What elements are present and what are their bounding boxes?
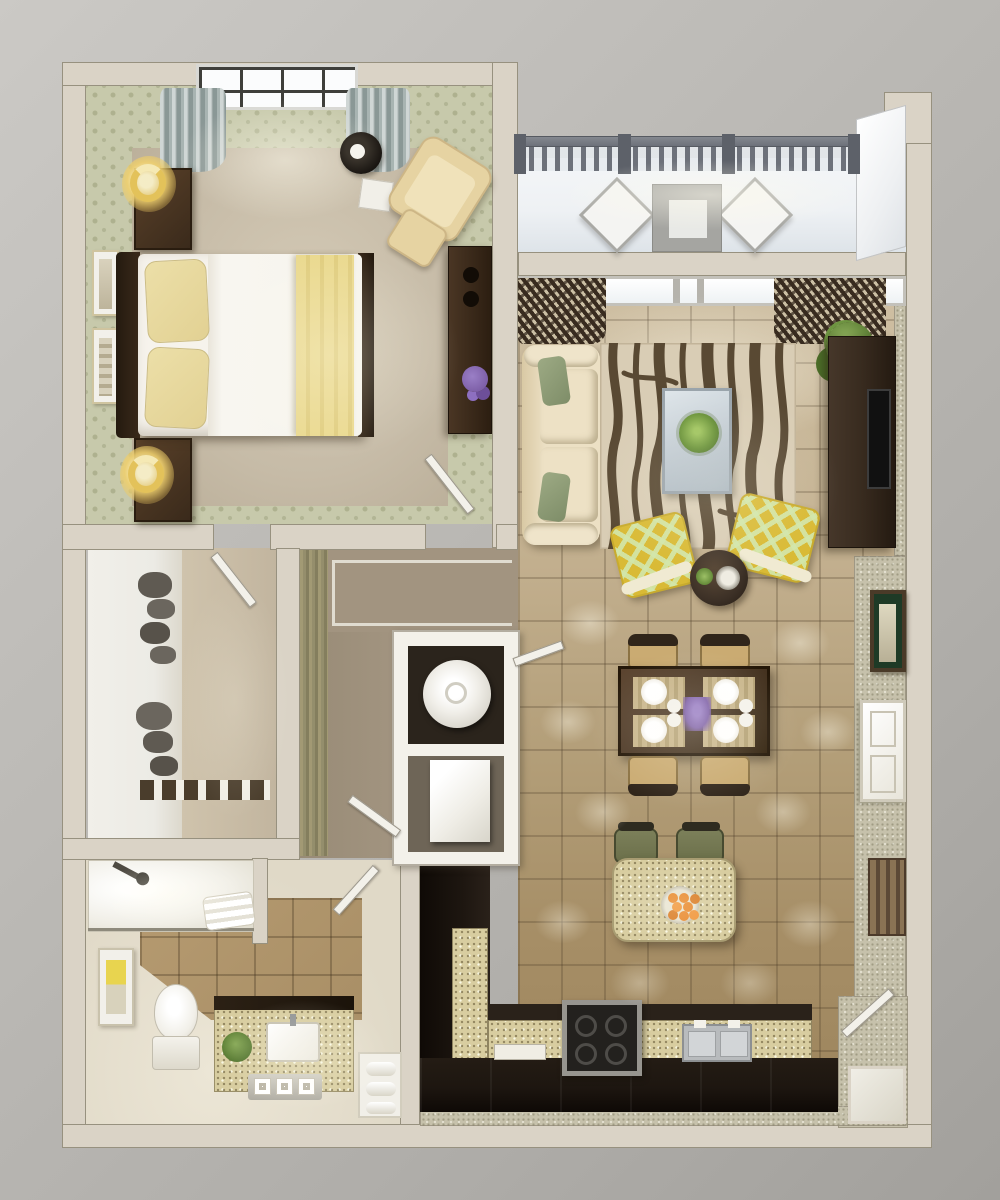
fruit-bowl: [661, 886, 699, 924]
entry-niche: [848, 1066, 906, 1124]
chair-back: [628, 634, 678, 646]
flowers-purple: [462, 366, 488, 392]
dresser-handle: [463, 267, 479, 283]
closet-clothes-top: [134, 572, 180, 670]
sofa: [522, 345, 600, 545]
toilet-tank: [152, 1036, 200, 1070]
stove: [562, 1000, 642, 1076]
table-succulent: [696, 568, 713, 585]
washer-lid-ring: [445, 682, 467, 704]
bathroom-right-wall: [400, 858, 420, 1125]
shower-glass-line: [88, 928, 254, 931]
side-plate: [667, 699, 681, 713]
dining-chair-bottom-right: [700, 756, 750, 790]
railing-balusters: [516, 147, 859, 171]
towel-roll: [366, 1062, 396, 1076]
sink-basin: [720, 1031, 748, 1057]
hallway-trim: [332, 560, 512, 626]
dining-table: [618, 666, 770, 756]
bath-towels: [202, 891, 256, 932]
exterior-wall-right: [906, 92, 932, 1148]
balcony-side-wall: [856, 105, 906, 261]
railing-post: [618, 134, 631, 174]
hall-closet-panel: [860, 700, 906, 802]
bed-throw-blanket: [296, 255, 354, 436]
bedroom-floor-lamp: [340, 132, 382, 174]
stove-grate: [605, 1015, 627, 1037]
chair-back: [628, 784, 678, 796]
candle-bowl: [716, 566, 740, 590]
stove-grate: [575, 1015, 597, 1037]
dinner-plate: [641, 717, 667, 743]
bedroom-curtain-left: [160, 88, 226, 172]
art-content: [879, 604, 896, 662]
stove-grate: [575, 1043, 597, 1065]
bathroom-divider-stub: [252, 858, 268, 944]
side-plate: [739, 699, 753, 713]
bedroom-flower-vase: [460, 366, 492, 412]
chair-back: [700, 784, 750, 796]
round-side-table: [690, 550, 748, 606]
lamp-shade-ring: [130, 164, 166, 202]
railing-top-bar: [514, 136, 860, 147]
closet-bottom-wall: [62, 838, 300, 860]
panel-inset: [870, 755, 896, 793]
window-mullion: [673, 279, 680, 303]
balcony-living-wall: [518, 252, 906, 276]
vanity-sink: [266, 1022, 320, 1062]
laundry-closet: [392, 630, 520, 866]
stool-back: [682, 822, 720, 831]
closet-shelf-rail: [140, 780, 270, 800]
toiletry-bottle: [276, 1078, 293, 1095]
flower-centerpiece: [683, 697, 711, 731]
counter-granite-left: [452, 928, 488, 1062]
stove-grate: [605, 1043, 627, 1065]
succulent-plant: [679, 413, 719, 453]
bedroom-bottom-wall-c: [496, 524, 518, 550]
linen-niche: [358, 1052, 402, 1118]
coffee-table: [662, 388, 732, 494]
tv-console: [828, 336, 896, 548]
patio-table: [652, 184, 722, 252]
railing-post: [848, 134, 860, 174]
oranges: [668, 893, 678, 903]
art-content: [99, 259, 112, 309]
toiletry-bottle: [254, 1078, 271, 1095]
floor-lamp-bulb: [350, 144, 365, 159]
exterior-wall-bottom: [62, 1124, 932, 1148]
clothes-blob: [138, 572, 172, 598]
bedroom-framed-art-1: [92, 250, 119, 316]
dryer-unit: [430, 760, 490, 842]
closet-clothes-bottom: [130, 702, 180, 782]
towel-roll: [366, 1102, 396, 1114]
bed-pillow-1: [144, 258, 210, 343]
hallway-olive-wall-band: [300, 548, 328, 856]
panel-inset: [870, 711, 896, 747]
toilet: [152, 984, 200, 1070]
washer-drum: [423, 660, 491, 728]
bedroom-bottom-wall-a: [62, 524, 214, 550]
soap-dish: [728, 1020, 740, 1028]
bathroom-framed-art: [98, 948, 134, 1026]
toiletry-tray: [248, 1074, 322, 1100]
vanity-faucet: [290, 1014, 296, 1026]
table-lamp-top: [122, 156, 176, 212]
washer-compartment: [408, 646, 504, 744]
dining-chair-top-right: [700, 636, 750, 670]
counter-back-edge: [488, 1004, 812, 1020]
toiletry-bottle: [298, 1078, 315, 1095]
clothes-blob: [136, 702, 172, 730]
toilet-lid: [154, 984, 198, 1040]
art-content: [99, 338, 112, 396]
dinner-plate: [713, 717, 739, 743]
sofa-arm-bottom: [524, 523, 598, 545]
vanity-backsplash: [214, 996, 354, 1010]
exterior-wall-left: [62, 62, 86, 1148]
window-mullion: [697, 279, 704, 303]
chair-back: [700, 634, 750, 646]
cutting-board: [494, 1044, 546, 1060]
patio-table-top: [669, 200, 707, 238]
closet-right-wall: [276, 548, 300, 840]
soap-dish: [694, 1020, 706, 1028]
sink-basin: [688, 1031, 716, 1057]
kitchen-sink: [682, 1024, 752, 1062]
dryer-compartment: [408, 756, 504, 852]
lamp-shade-ring: [128, 455, 164, 493]
vanity-plant: [222, 1032, 252, 1062]
tv-screen: [867, 389, 891, 489]
kitchen-island: [612, 858, 736, 942]
art-content: [106, 960, 126, 1014]
bedroom-framed-art-2: [92, 328, 119, 404]
side-plate: [667, 713, 681, 727]
floor-plan-scene: [0, 0, 1000, 1200]
louvered-panel: [868, 858, 906, 936]
dinner-plate: [713, 679, 739, 705]
bed-headboard: [116, 252, 140, 438]
living-framed-art: [870, 590, 906, 672]
bed: [116, 250, 374, 440]
dining-chair-top-left: [628, 636, 678, 670]
table-lamp-bottom: [120, 446, 174, 504]
bed-pillow-2: [144, 346, 210, 429]
dining-chair-bottom-left: [628, 756, 678, 790]
railing-post: [514, 134, 526, 174]
stool-back: [618, 822, 654, 831]
dinner-plate: [641, 679, 667, 705]
side-plate: [739, 713, 753, 727]
bedroom-bottom-wall-b: [270, 524, 426, 550]
towel-roll: [366, 1082, 396, 1096]
balcony-railing: [514, 136, 860, 174]
living-curtain-left: [518, 278, 606, 344]
dresser-handle: [463, 291, 479, 307]
railing-post: [722, 134, 735, 174]
